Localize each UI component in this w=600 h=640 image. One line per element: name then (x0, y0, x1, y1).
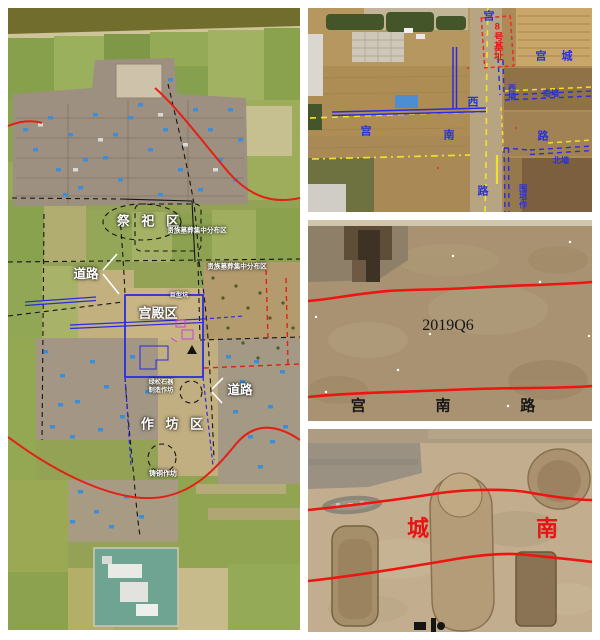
trench-2019q6-panel: 2019Q6 宫 南 路 (308, 220, 592, 421)
noble-tombs-label-a: 贵族墓葬集中分布区 (167, 229, 226, 236)
excavation-plan-panel: 宫 西 路 宫 南 路 8号基址 宫 城 西墙 南墙 北墙 围垣作 (308, 8, 592, 212)
workshop-area-label: 作 坊 区 (141, 418, 203, 431)
excavation-unit-label: 2019Q6 (422, 318, 474, 334)
gong-west-road-char2: 西 (468, 98, 479, 109)
aerial-photo (308, 8, 592, 212)
gong-south-road-char1: 宫 (361, 127, 372, 138)
palace-city-label: 宫 城 (535, 52, 572, 63)
west-wall-label: 西墙 (507, 84, 515, 100)
nan-label: 南 (536, 518, 558, 540)
giant-pit-label: 巨型坑 (170, 293, 189, 299)
south-wall-label: 南墙 (543, 90, 559, 98)
gong-west-road-char3: 路 (478, 187, 489, 198)
road-label-nw: 道路 (73, 268, 98, 281)
gong-south-road-char3: 路 (538, 132, 549, 143)
gong-south-road-char2: 南 (444, 131, 455, 142)
city-south-trench-panel: 城 南 (308, 429, 592, 632)
palace-area-label: 宫殿区 (138, 307, 177, 320)
foundation8-label: 8号基址 (492, 21, 502, 61)
noble-tombs-label-b: 贵族墓葬集中分布区 (207, 265, 266, 272)
blue-tarp (395, 95, 418, 108)
bronze-workshop-label: 铸铜作坊 (149, 471, 177, 478)
site-map-panel: 祭 祀 区 贵族墓葬集中分布区 贵族墓葬集中分布区 道路 宫殿区 巨型坑 道路 … (8, 8, 300, 630)
road-label-se: 道路 (227, 384, 252, 397)
construction-site (94, 548, 178, 626)
pale-pad (352, 32, 404, 62)
cheng-label: 城 (407, 518, 429, 540)
figure-canvas: 祭 祀 区 贵族墓葬集中分布区 贵族墓葬集中分布区 道路 宫殿区 巨型坑 道路 … (0, 0, 600, 640)
sacrificial-area-label: 祭 祀 区 (117, 215, 179, 228)
north-wall-label: 北墙 (553, 157, 569, 165)
enclosure-workshop-label: 围垣作 (518, 184, 526, 209)
turquoise-workshop-label-line2: 制造作坊 (149, 388, 174, 394)
gong-nan-road-label: 宫 南 路 (351, 400, 536, 415)
turquoise-workshop-label-line1: 绿松石器 (149, 380, 174, 386)
